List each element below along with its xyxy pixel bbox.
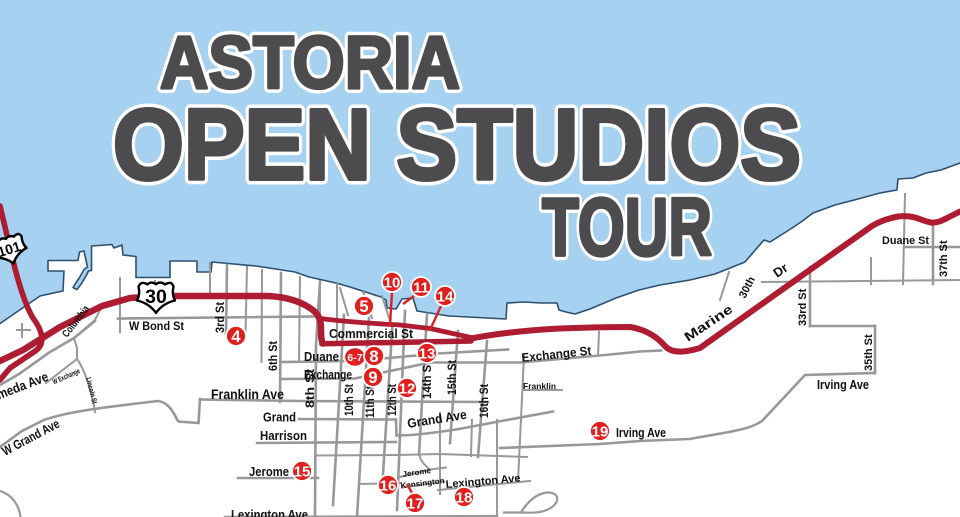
svg-text:Grand: Grand [263, 411, 296, 425]
svg-text:16: 16 [380, 478, 397, 495]
svg-text:37th St: 37th St [938, 240, 950, 277]
svg-text:30: 30 [145, 286, 167, 308]
svg-text:14: 14 [437, 289, 454, 306]
svg-text:15th St: 15th St [447, 360, 459, 395]
svg-text:Harrison: Harrison [260, 429, 307, 443]
svg-text:16th St: 16th St [479, 384, 491, 418]
svg-text:17: 17 [407, 496, 424, 513]
svg-text:8: 8 [369, 348, 378, 366]
svg-text:35th St: 35th St [863, 334, 875, 371]
svg-text:18: 18 [456, 490, 473, 507]
svg-text:5: 5 [359, 298, 368, 316]
svg-text:Franklin: Franklin [523, 381, 556, 391]
svg-text:19: 19 [592, 424, 609, 441]
svg-text:Duane: Duane [304, 349, 339, 364]
svg-text:3rd St: 3rd St [215, 302, 227, 333]
svg-text:9: 9 [368, 369, 377, 387]
svg-text:Irving Ave: Irving Ave [616, 426, 666, 440]
svg-text:10th St: 10th St [344, 384, 356, 416]
svg-text:14th St: 14th St [422, 361, 434, 399]
svg-text:Franklin Ave: Franklin Ave [211, 387, 284, 402]
svg-text:Lexington Ave: Lexington Ave [231, 508, 308, 517]
svg-text:6th St: 6th St [268, 341, 280, 371]
svg-text:11th St: 11th St [365, 386, 377, 418]
svg-text:11: 11 [413, 280, 429, 297]
svg-text:TOUR: TOUR [542, 182, 712, 273]
svg-text:33rd St: 33rd St [797, 288, 809, 326]
svg-text:15: 15 [294, 464, 311, 481]
svg-text:W Bond St: W Bond St [129, 319, 184, 333]
svg-text:12: 12 [399, 381, 416, 398]
svg-text:13: 13 [419, 346, 436, 363]
svg-text:4: 4 [231, 328, 241, 346]
svg-text:Jerome: Jerome [249, 465, 289, 479]
svg-text:Duane St: Duane St [882, 235, 929, 247]
svg-text:Irving Ave: Irving Ave [817, 378, 869, 392]
svg-text:Commercial St: Commercial St [329, 327, 414, 341]
svg-text:6-7: 6-7 [347, 352, 362, 364]
svg-text:10: 10 [384, 275, 401, 292]
svg-text:8th St: 8th St [305, 369, 317, 408]
